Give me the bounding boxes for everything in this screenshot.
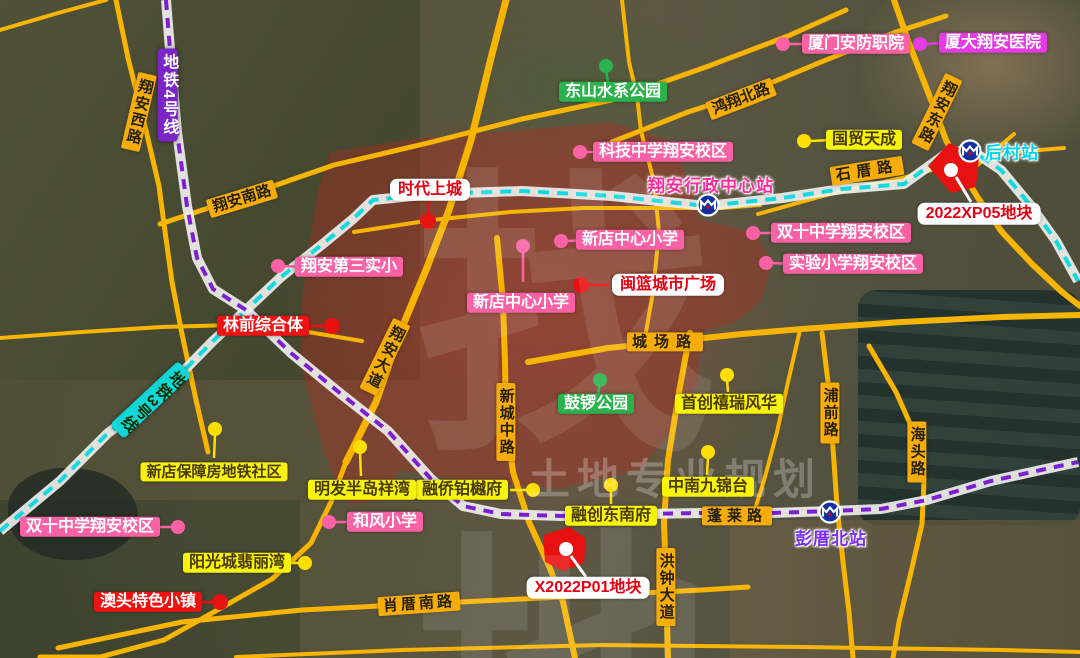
poi-dot xyxy=(776,37,790,51)
poi-label-linqian-complex: 林前综合体 xyxy=(217,316,309,336)
road-topleft-corner-line xyxy=(0,0,106,30)
metro-station-icon-xingzheng xyxy=(696,193,720,217)
poi-dot xyxy=(913,37,927,51)
plot-x2022p01-dot xyxy=(559,542,573,556)
poi-dot xyxy=(554,234,568,248)
poi-label-xindian-primary-1: 新店中心小学 xyxy=(576,230,684,250)
poi-label-baozhangfang: 新店保障房地铁社区 xyxy=(140,462,287,481)
poi-dot xyxy=(353,440,367,454)
poi-label-rongqiao: 融侨铂樾府 xyxy=(416,480,508,500)
poi-dot xyxy=(208,422,222,436)
poi-dot xyxy=(573,277,589,293)
poi-label-zhongnan: 中南九锦台 xyxy=(662,477,754,497)
road-label-haitou: 海头路 xyxy=(907,422,926,483)
poi-connector xyxy=(214,434,215,458)
poi-label-mingfa: 明发半岛祥湾 xyxy=(308,480,416,500)
poi-label-minlan-plaza: 闽篮城市广场 xyxy=(612,274,724,296)
road-label-puqian: 浦前路 xyxy=(820,383,839,444)
poi-label-dongshan-park: 东山水系公园 xyxy=(559,82,667,102)
satellite-map: 找地 土地专业规划 地铁4号线 地铁3号线 翔安西路 翔安南路 鸿翔北路 翔安东… xyxy=(0,0,1080,658)
road-label-penglai: 蓬莱路 xyxy=(702,506,772,525)
poi-dot xyxy=(599,59,613,73)
poi-dot xyxy=(298,556,312,570)
poi-dot xyxy=(759,256,773,270)
road-bottom-edge-line xyxy=(236,645,1080,657)
poi-dot xyxy=(797,134,811,148)
poi-dot xyxy=(324,318,340,334)
poi-label-shiyan-primary: 实验小学翔安校区 xyxy=(783,254,923,274)
poi-dot xyxy=(526,483,540,497)
plot-2022xp05-dot xyxy=(944,163,958,177)
poi-label-rongchuang: 融创东南府 xyxy=(565,506,657,526)
metro-station-icon-houcun xyxy=(958,139,982,163)
poi-label-xindian-primary-2: 新店中心小学 xyxy=(467,293,575,313)
station-name-pengcuobei: 彭厝北站 xyxy=(795,525,867,550)
poi-connector xyxy=(360,452,361,476)
poi-label-guluo-park: 鼓锣公园 xyxy=(558,394,634,414)
road-label-xincheng-zhong: 新城中路 xyxy=(496,383,515,461)
poi-dot xyxy=(573,145,587,159)
poi-dot xyxy=(171,520,185,534)
poi-label-shuangshi-right: 双十中学翔安校区 xyxy=(771,223,911,243)
station-name-xingzheng: 翔安行政中心站 xyxy=(648,172,774,197)
poi-label-shouchuang: 首创禧瑞风华 xyxy=(675,394,783,414)
poi-dot xyxy=(271,259,285,273)
poi-label-xiada-hospital: 厦大翔安医院 xyxy=(939,33,1047,53)
poi-dot xyxy=(212,594,228,610)
metro-station-icon-pengcuobei xyxy=(818,500,842,524)
poi-label-hefeng-primary: 和风小学 xyxy=(347,512,423,532)
poi-label-anfang-college: 厦门安防职院 xyxy=(802,34,910,54)
plot-label-x2022p01: X2022P01地块 xyxy=(527,577,650,599)
poi-label-guomao-tiancheng: 国贸天成 xyxy=(826,130,902,150)
poi-label-shidai-shangcheng: 时代上城 xyxy=(390,179,470,201)
poi-connector xyxy=(707,457,708,475)
road-label-chengchang: 城场路 xyxy=(627,332,703,351)
poi-dot xyxy=(720,368,734,382)
poi-dot xyxy=(593,373,607,387)
road-label-hongzhong: 洪钟大道 xyxy=(656,548,675,626)
metro-line4-label: 地铁4号线 xyxy=(158,49,178,142)
poi-label-yangguangcheng: 阳光城翡丽湾 xyxy=(183,553,291,573)
poi-label-aotou-town: 澳头特色小镇 xyxy=(94,592,202,612)
poi-label-disan-primary: 翔安第三实小 xyxy=(295,257,403,277)
poi-dot xyxy=(604,478,618,492)
poi-dot xyxy=(322,515,336,529)
road-secondary-east-line xyxy=(756,330,800,506)
poi-dot xyxy=(746,226,760,240)
poi-label-keji-school: 科技中学翔安校区 xyxy=(593,142,733,162)
station-name-houcun: 后村站 xyxy=(985,139,1039,164)
plot-label-2022xp05: 2022XP05地块 xyxy=(918,203,1041,225)
poi-dot xyxy=(420,213,436,229)
poi-dot xyxy=(701,445,715,459)
poi-label-shuangshi-left: 双十中学翔安校区 xyxy=(20,517,160,537)
poi-dot xyxy=(516,239,530,253)
